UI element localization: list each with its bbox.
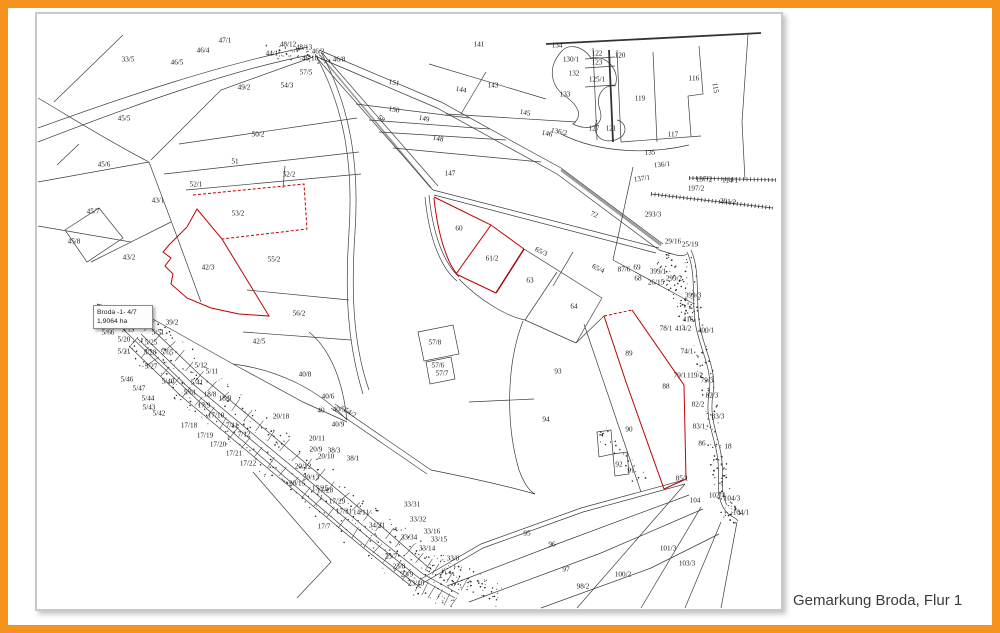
parcel-label: 61/2 [486,255,499,263]
parcel-label: 38/1 [347,455,360,463]
parcel-label: 48/13 [296,44,313,52]
parcel-label: 25/19 [682,241,699,249]
parcel-label: 5/11 [206,368,219,376]
parcel-label: 299/2 [666,275,683,283]
parcel-label: 137/2 [696,176,713,184]
parcel-label: 57/7 [436,370,449,378]
parcel-label: 33/32 [410,516,427,524]
parcel-label: 104/3 [724,495,741,503]
parcel-label: 50/2 [252,131,265,139]
parcel-label: 96 [548,541,556,549]
parcel-label: 97 [562,566,570,574]
parcel-label: 293/3 [645,211,662,219]
parcel-label: 5/61 [184,389,197,397]
parcel-label: 69 [633,264,641,272]
parcel-label: 399/3 [685,292,702,300]
parcel-labels-layer: 33/546/447/146/544/148/1248/1346/246/104… [68,37,750,591]
parcel-label: 33/14 [419,545,436,553]
parcel-label: 93 [554,368,562,376]
map-caption: Gemarkung Broda, Flur 1 [793,592,962,609]
parcel-label: 120 [615,52,626,60]
parcel-info-box: Broda -1- 4/7 1,9064 ha [93,305,153,329]
parcel-label: 5/65 [161,349,174,357]
parcel-label: 26/15 [648,279,665,287]
parcel-label: 127 [589,125,600,133]
parcel-label: 79/1 [674,372,687,380]
parcel-label: 7/12 [238,431,251,439]
parcel-label: 46/8 [333,56,346,64]
parcel-label: 101/3 [660,545,677,553]
parcel-label: 34/31 [369,522,386,530]
parcel-label: 141 [474,41,485,49]
parcel-label: 135 [644,148,656,157]
parcel-label: 133 [560,91,571,99]
parcel-label: 122 [592,50,603,58]
parcel-label: 17/19 [197,432,214,440]
parcel-label: 5/40 [162,378,175,386]
parcel-label: 132 [569,70,580,78]
parcel-label: 33/16 [424,528,441,536]
parcel-label: 5/21 [118,348,131,356]
parcel-label: 56/2 [293,310,306,318]
parcel-label: 17/20 [210,441,227,449]
parcel-label: 72 [589,210,599,220]
parcel-label: 123 [592,59,603,67]
parcel-label: 114/1 [722,177,739,185]
parcel-label: 86 [698,440,706,448]
parcel-label: 58 [376,113,387,124]
parcel-label: 74/1 [681,348,694,356]
parcel-label: 40/6 [322,393,335,401]
parcel-label: 82/3 [706,392,719,400]
parcel-label: 414/2 [675,325,692,333]
parcel-label: 17/29 [329,498,346,506]
parcel-label: 57/8 [429,339,442,347]
parcel-label: 88 [662,383,670,391]
parcel-label: 33/5 [122,56,135,64]
parcel-label: 7/11 [226,422,239,430]
parcel-label: 33/31 [404,501,421,509]
parcel-label: 23/8 [393,563,406,571]
parcel-label: 57/5 [300,69,313,77]
map-sheet-edge-lines [546,33,761,142]
parcel-label: 43/1 [152,197,165,205]
parcel-label: 5/20 [118,336,131,344]
parcel-label: 17/21 [226,450,243,458]
parcel-label: 43/2 [123,254,136,262]
parcel-label: 399/1 [650,268,667,276]
parcel-label: 103/3 [679,560,696,568]
parcel-label: 98/2 [577,583,590,591]
parcel-label: 18 [724,443,732,451]
parcel-label: 5/28 [144,349,157,357]
parcel-label: 79/3 [701,377,714,385]
parcel-label: 18/9 [219,395,232,403]
parcel-label: 83/1 [693,423,706,431]
parcel-label: 17/7 [318,523,331,531]
parcel-label: 51 [231,158,239,166]
parcel-label: 147 [445,170,456,178]
parcel-label: 40/9 [332,421,345,429]
parcel-label: 17/22 [240,460,257,468]
parcel-label: 121 [606,125,617,133]
parcel-label: 17/31 [336,508,353,516]
parcel-label: 46/4 [197,47,210,55]
parcel-label: 52/1 [190,181,203,189]
parcel-label: 119 [635,95,646,103]
parcel-label: 63 [526,277,534,285]
parcel-label: 54/3 [281,82,294,90]
parcel-label: 5/51 [152,329,165,337]
parcel-label: 57/6 [432,362,445,370]
parcel-label: 42/5 [253,338,266,346]
parcel-label: 39/2 [166,319,179,327]
parcel-label: 136/1 [653,160,671,170]
parcel-label: 89 [625,350,633,358]
parcel-label: 5/46 [121,376,134,384]
parcel-label: 400/1 [698,327,715,335]
parcel-label: 130/1 [563,56,580,64]
parcel-label: 68 [634,275,642,283]
parcel-label: 20/18 [273,413,290,421]
parcel-label: 18/8 [204,391,217,399]
parcel-label: 45/5 [118,115,131,123]
parcel-label: 47/1 [219,37,232,45]
parcel-label: 48/12 [280,41,297,49]
parcel-label: 53/2 [232,210,245,218]
parcel-label: 49/2 [238,84,251,92]
parcel-label: 65/4 [591,262,606,275]
parcel-label: 40/8 [299,371,312,379]
parcel-label: 17/10 [208,412,225,420]
parcel-label: 137/1 [633,174,651,184]
parcel-label: 20/13 [303,474,320,482]
parcel-label: 143 [488,82,499,90]
parcel-label: 136/2 [550,126,568,137]
parcel-label: 45/6 [98,161,111,169]
parcel-label: 5/42 [153,410,166,418]
parcel-info-area: 1,9064 ha [97,317,149,326]
boundary-hatch-marks [651,178,776,208]
parcel-label: 45/7 [87,208,100,216]
parcel-label: 125/1 [589,76,606,84]
parcel-label: 20/15 [289,480,306,488]
parcel-label: 52/2 [283,171,296,179]
parcel-label: 116 [689,75,700,83]
parcel-label: 60 [455,225,463,233]
parcel-label: 20/12 [295,463,312,471]
parcel-label: 197/2 [688,185,705,193]
parcel-label: 55/2 [268,256,281,264]
parcel-label: 144 [455,85,467,95]
parcel-label: 151 [388,78,400,88]
parcel-label: 29/16 [665,238,682,246]
parcel-label: 20/10 [318,453,335,461]
parcel-label: 14/11 [353,509,370,517]
parcel-label: 5/66 [102,329,115,337]
parcel-label: 33/15 [431,536,448,544]
parcel-label: 46/5 [171,59,184,67]
parcel-label: 44/1 [266,50,279,58]
parcel-label: 87/6 [618,266,631,274]
parcel-label: 85/1 [676,475,689,483]
parcel-label: 17/25 [312,485,329,493]
parcel-label: 33/34 [401,534,418,542]
map-panel: 33/546/447/146/544/148/1248/1346/246/104… [35,12,783,611]
highlighted-parcel-outlines [163,184,686,489]
parcel-label: 46/10 [302,55,319,63]
parcel-label: 82/2 [692,401,705,409]
parcel-label: 5/44 [142,395,155,403]
parcel-label: 150 [388,105,400,115]
parcel-label: 23/7 [385,553,398,561]
parcel-label: 5/41 [191,379,204,387]
parcel-label: 23/10 [408,580,425,588]
parcel-label: 23/9 [401,571,414,579]
parcel-label: 92 [615,461,623,469]
parcel-label: 94 [542,416,550,424]
parcel-label: 5/27 [145,363,158,371]
parcel-label: 416 [683,316,694,324]
parcel-label: 117 [668,131,679,139]
parcel-label: 40 [317,407,325,415]
parcel-label: 33/8 [447,555,460,563]
parcel-label: 104 [690,497,701,505]
parcel-label: 90 [625,426,633,434]
parcel-label: 20/11 [309,435,326,443]
parcel-label: 17/9 [198,402,211,410]
parcel-label: 145 [519,108,531,118]
parcel-label: 64 [570,303,578,311]
parcel-info-name: Broda -1- 4/7 [97,308,149,317]
vegetation-speckles [125,44,743,609]
parcel-label: 78/1 [660,325,673,333]
parcel-label: 5/47 [133,385,146,393]
parcel-label: 291/2 [719,197,737,207]
parcel-label: 83/3 [712,413,725,421]
parcel-label: 104/1 [733,509,750,517]
parcel-label: 17/18 [181,422,198,430]
parcel-label: 5/25 [145,339,158,347]
parcel-label: 95 [523,530,531,538]
parcel-label: 115 [710,82,720,94]
parcel-label: 134 [552,42,563,50]
parcel-label: 149 [418,114,430,124]
parcel-label: 42/3 [202,264,215,272]
parcel-label: 148 [432,134,444,144]
parcel-label: 100/2 [615,571,632,579]
parcel-label: 91 [627,467,635,475]
parcel-label: 45/8 [68,238,81,246]
